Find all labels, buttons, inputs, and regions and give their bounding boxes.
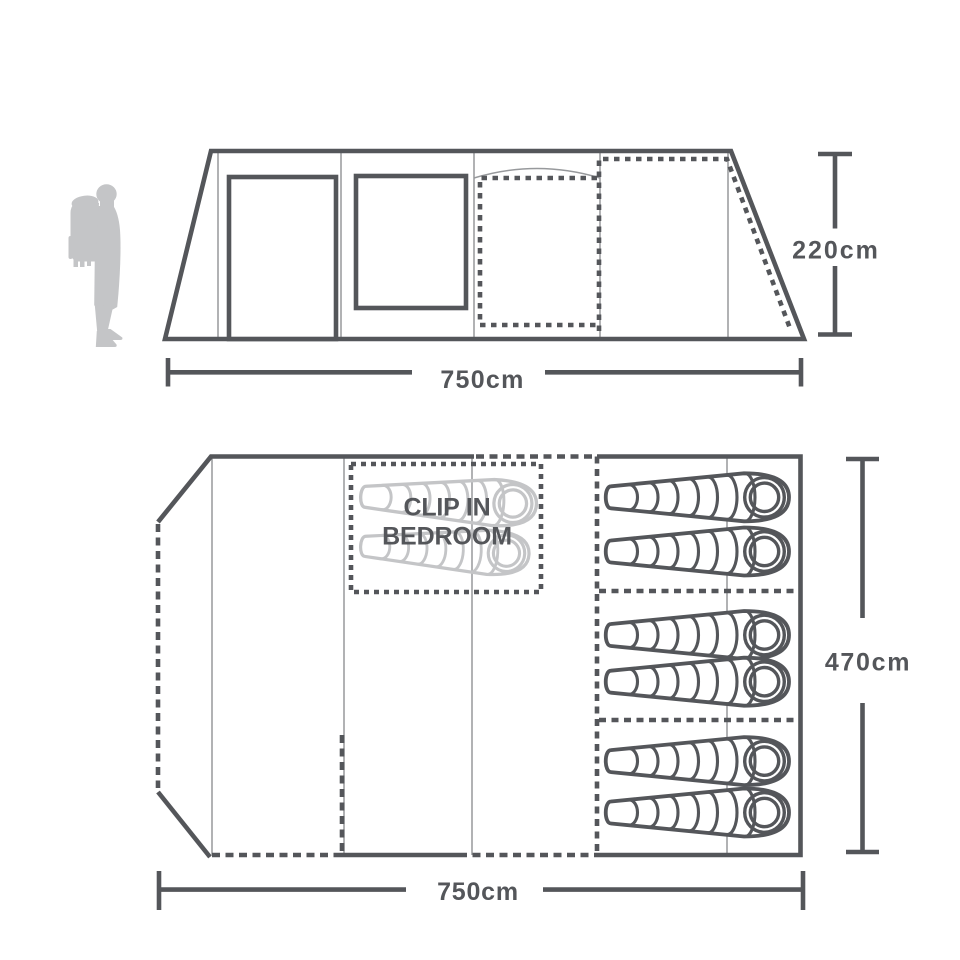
svg-text:750cm: 750cm — [437, 878, 519, 906]
svg-text:220cm: 220cm — [792, 237, 880, 265]
svg-text:470cm: 470cm — [825, 649, 911, 677]
svg-text:CLIP IN: CLIP IN — [403, 494, 490, 522]
svg-text:750cm: 750cm — [440, 366, 524, 394]
svg-text:BEDROOM: BEDROOM — [382, 523, 512, 551]
